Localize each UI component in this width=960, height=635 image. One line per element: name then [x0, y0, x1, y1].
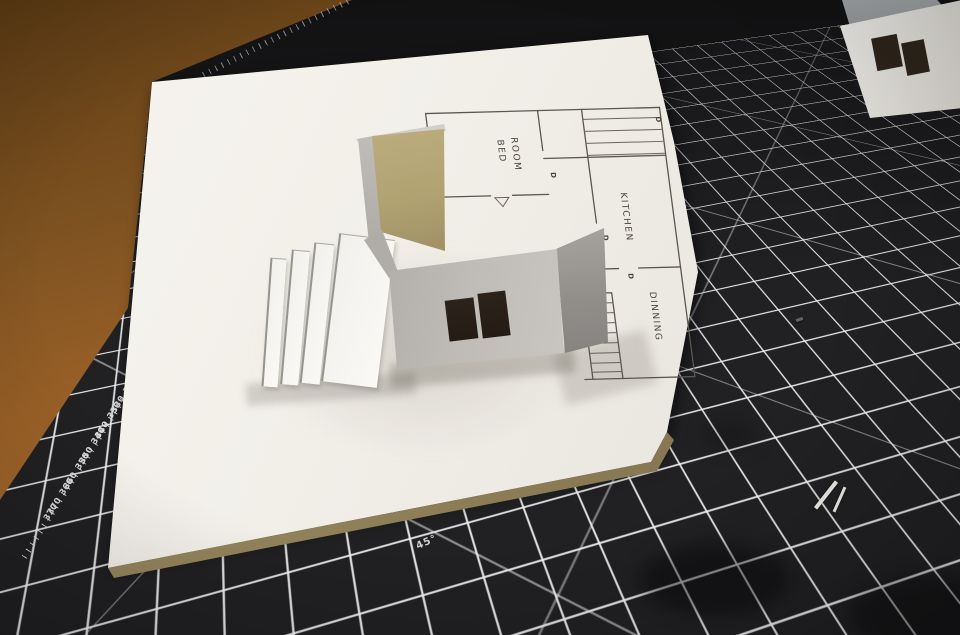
plan-label-dining: DINNING — [647, 292, 664, 342]
plan-label-bedroom-2: ROOM — [508, 137, 522, 171]
plan-label-kitchen: KITCHEN — [618, 192, 634, 242]
plan-kitchen-wall — [603, 267, 681, 269]
plan-door-triangle — [495, 197, 510, 206]
plan-door-mark: D — [549, 172, 559, 178]
plan-door-mark: D — [654, 116, 664, 122]
front-window-right — [477, 290, 510, 338]
plan-door-mark: D — [626, 273, 636, 279]
plan-wall-top — [426, 107, 660, 113]
front-window-left — [445, 297, 479, 341]
plan-hall-wall — [544, 155, 666, 158]
photo-paper-house-model-scene: 310310 320320 330330 340340 350350 36036… — [0, 0, 960, 635]
plan-stairs-top-steps — [583, 117, 666, 155]
plan-stairs-top-left-rail — [582, 109, 588, 157]
plan-label-bedroom-1: BED — [494, 139, 507, 162]
plan-bedroom-wall — [437, 194, 549, 197]
plan-corridor-wall — [538, 111, 543, 151]
